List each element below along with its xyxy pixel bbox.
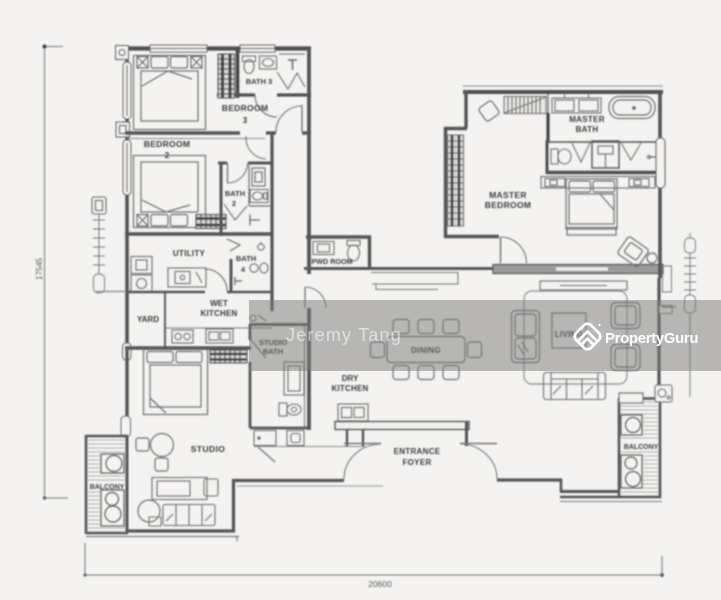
svg-text:UTILITY: UTILITY: [173, 249, 206, 258]
svg-text:BATH 3: BATH 3: [246, 77, 273, 86]
svg-text:20600: 20600: [368, 579, 392, 589]
svg-text:PropertyGuru: PropertyGuru: [605, 331, 698, 347]
svg-text:YARD: YARD: [137, 315, 159, 324]
svg-text:2: 2: [165, 151, 170, 160]
svg-text:4: 4: [241, 265, 246, 274]
svg-text:BEDROOM: BEDROOM: [222, 103, 269, 113]
svg-text:BATH: BATH: [225, 189, 245, 198]
svg-text:MASTER: MASTER: [569, 115, 605, 124]
svg-text:3: 3: [243, 116, 248, 125]
svg-text:DRY: DRY: [342, 374, 359, 383]
svg-text:FOYER: FOYER: [402, 458, 431, 467]
svg-text:MASTER: MASTER: [489, 190, 527, 200]
svg-text:WET: WET: [210, 299, 228, 308]
svg-text:BEDROOM: BEDROOM: [144, 139, 191, 149]
svg-text:17545: 17545: [35, 257, 44, 280]
svg-text:KITCHEN: KITCHEN: [201, 309, 238, 318]
svg-text:ENTRANCE: ENTRANCE: [394, 447, 441, 456]
svg-text:BATH: BATH: [236, 254, 256, 263]
svg-text:BEDROOM: BEDROOM: [485, 200, 532, 210]
svg-text:STUDIO: STUDIO: [191, 444, 226, 454]
svg-text:PWD ROOM: PWD ROOM: [311, 257, 352, 266]
svg-text:KITCHEN: KITCHEN: [332, 384, 369, 393]
svg-text:BALCONY: BALCONY: [624, 444, 659, 451]
svg-text:BATH: BATH: [576, 125, 599, 134]
svg-text:2: 2: [232, 199, 236, 208]
